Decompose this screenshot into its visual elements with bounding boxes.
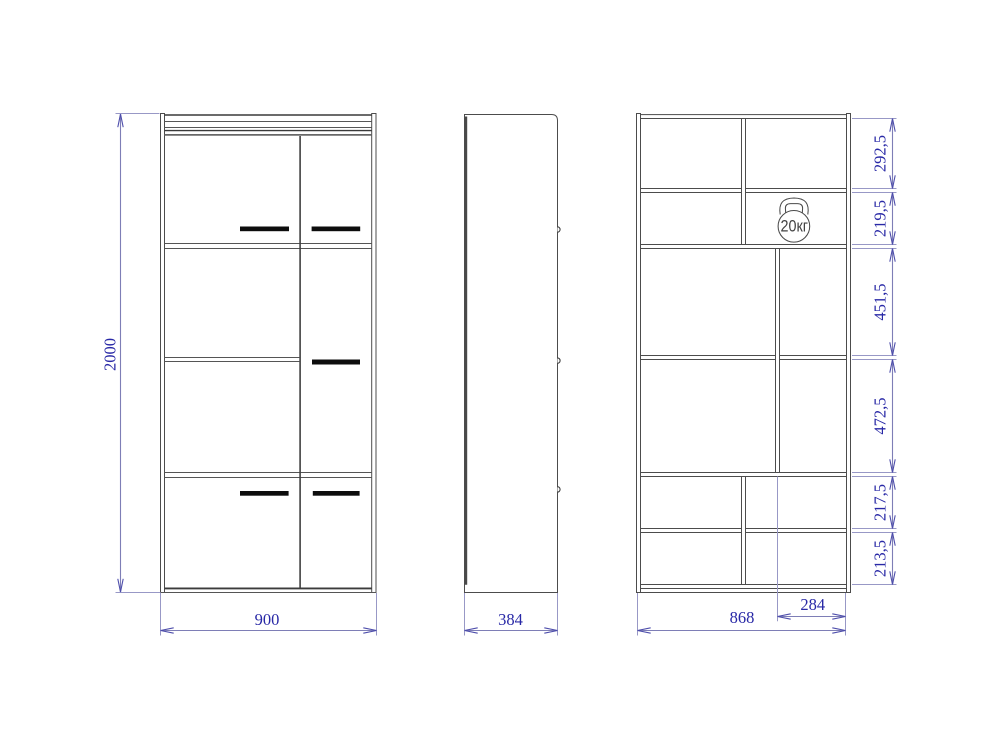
svg-text:900: 900 <box>255 610 280 629</box>
svg-text:384: 384 <box>498 610 523 629</box>
svg-text:20кг: 20кг <box>781 216 809 235</box>
svg-text:868: 868 <box>730 608 755 627</box>
svg-text:451,5: 451,5 <box>871 283 890 320</box>
svg-text:219,5: 219,5 <box>871 200 890 237</box>
svg-text:292,5: 292,5 <box>871 135 890 172</box>
svg-text:284: 284 <box>800 595 825 614</box>
svg-text:2000: 2000 <box>101 338 120 371</box>
svg-text:217,5: 217,5 <box>871 484 890 521</box>
svg-text:213,5: 213,5 <box>871 540 890 577</box>
svg-text:472,5: 472,5 <box>871 397 890 434</box>
